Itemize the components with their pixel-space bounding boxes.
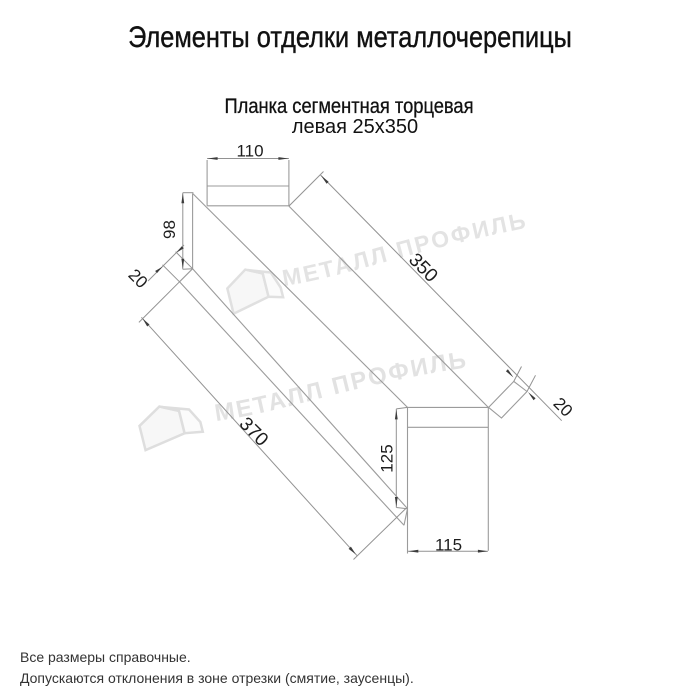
svg-text:125: 125 bbox=[378, 444, 397, 472]
svg-text:115: 115 bbox=[435, 536, 462, 555]
svg-text:20: 20 bbox=[124, 265, 151, 292]
svg-text:370: 370 bbox=[235, 413, 272, 450]
svg-text:110: 110 bbox=[236, 142, 263, 161]
svg-text:350: 350 bbox=[404, 249, 441, 286]
svg-text:20: 20 bbox=[549, 394, 576, 421]
svg-text:98: 98 bbox=[160, 220, 179, 239]
